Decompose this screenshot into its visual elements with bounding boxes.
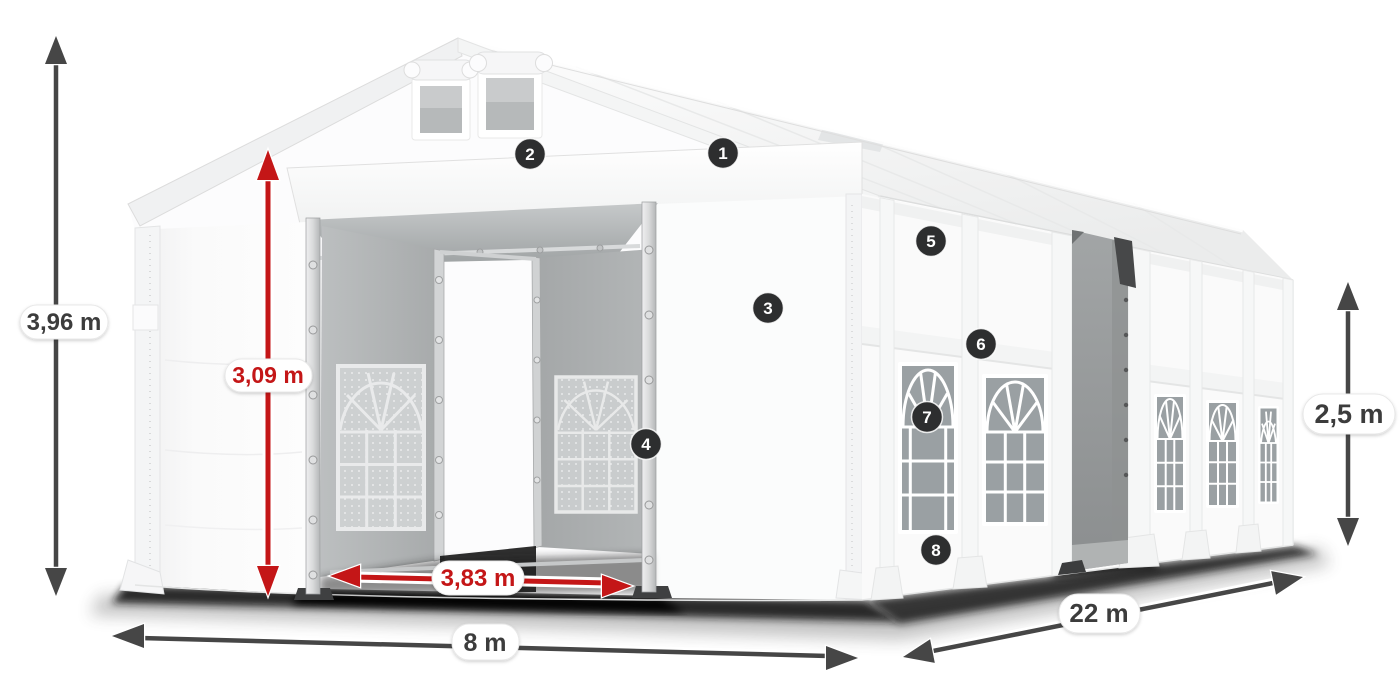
badge-2-number: 2 bbox=[525, 145, 534, 164]
badge-7-number: 7 bbox=[922, 408, 931, 427]
badge-2: 2 bbox=[515, 139, 546, 170]
badge-1: 1 bbox=[708, 138, 739, 169]
door-leaf-left bbox=[320, 226, 444, 577]
corner-strip bbox=[846, 194, 862, 600]
tent-dimension-diagram: 3,96 m 3,09 m 3,83 m 8 m 22 m 2,5 m 1 2 … bbox=[0, 0, 1400, 700]
badge-5: 5 bbox=[916, 226, 947, 257]
diagram-canvas: 3,96 m 3,09 m 3,83 m 8 m 22 m 2,5 m 1 2 … bbox=[0, 0, 1400, 700]
side-length-value: 22 m bbox=[1069, 598, 1128, 628]
door-width-value: 3,83 m bbox=[441, 565, 516, 592]
side-window-3 bbox=[1154, 394, 1186, 513]
badge-6-number: 6 bbox=[976, 335, 985, 354]
badge-8-number: 8 bbox=[931, 541, 940, 560]
side-window-5 bbox=[1258, 406, 1279, 504]
badge-8: 8 bbox=[921, 535, 952, 566]
badge-4: 4 bbox=[631, 429, 662, 460]
side-door-opening bbox=[1072, 230, 1136, 571]
side-window-4 bbox=[1206, 400, 1239, 508]
badge-5-number: 5 bbox=[926, 232, 935, 251]
front-left-wall bbox=[120, 222, 306, 594]
side-window-2 bbox=[982, 374, 1048, 526]
inner-height-value: 3,09 m bbox=[232, 362, 304, 388]
leaf-window-print bbox=[338, 366, 424, 529]
front-right-wall bbox=[656, 194, 872, 600]
badge-4-number: 4 bbox=[641, 435, 651, 454]
side-window-1 bbox=[898, 362, 958, 534]
leaf-window-print bbox=[556, 377, 636, 512]
badge-7: 7 bbox=[912, 402, 943, 433]
side-height-value: 2,5 m bbox=[1314, 399, 1383, 429]
gable-vent-window-right bbox=[470, 52, 553, 138]
badge-3: 3 bbox=[753, 293, 784, 324]
corner-pocket bbox=[133, 305, 158, 330]
badge-6: 6 bbox=[966, 329, 997, 360]
badge-3-number: 3 bbox=[763, 299, 772, 318]
front-width-value: 8 m bbox=[463, 629, 506, 657]
badge-1-number: 1 bbox=[718, 144, 727, 163]
door-leaf-right bbox=[532, 249, 652, 554]
corner-strip bbox=[135, 226, 160, 585]
gable-vent-window-left bbox=[404, 60, 478, 140]
total-height-value: 3,96 m bbox=[27, 309, 102, 336]
